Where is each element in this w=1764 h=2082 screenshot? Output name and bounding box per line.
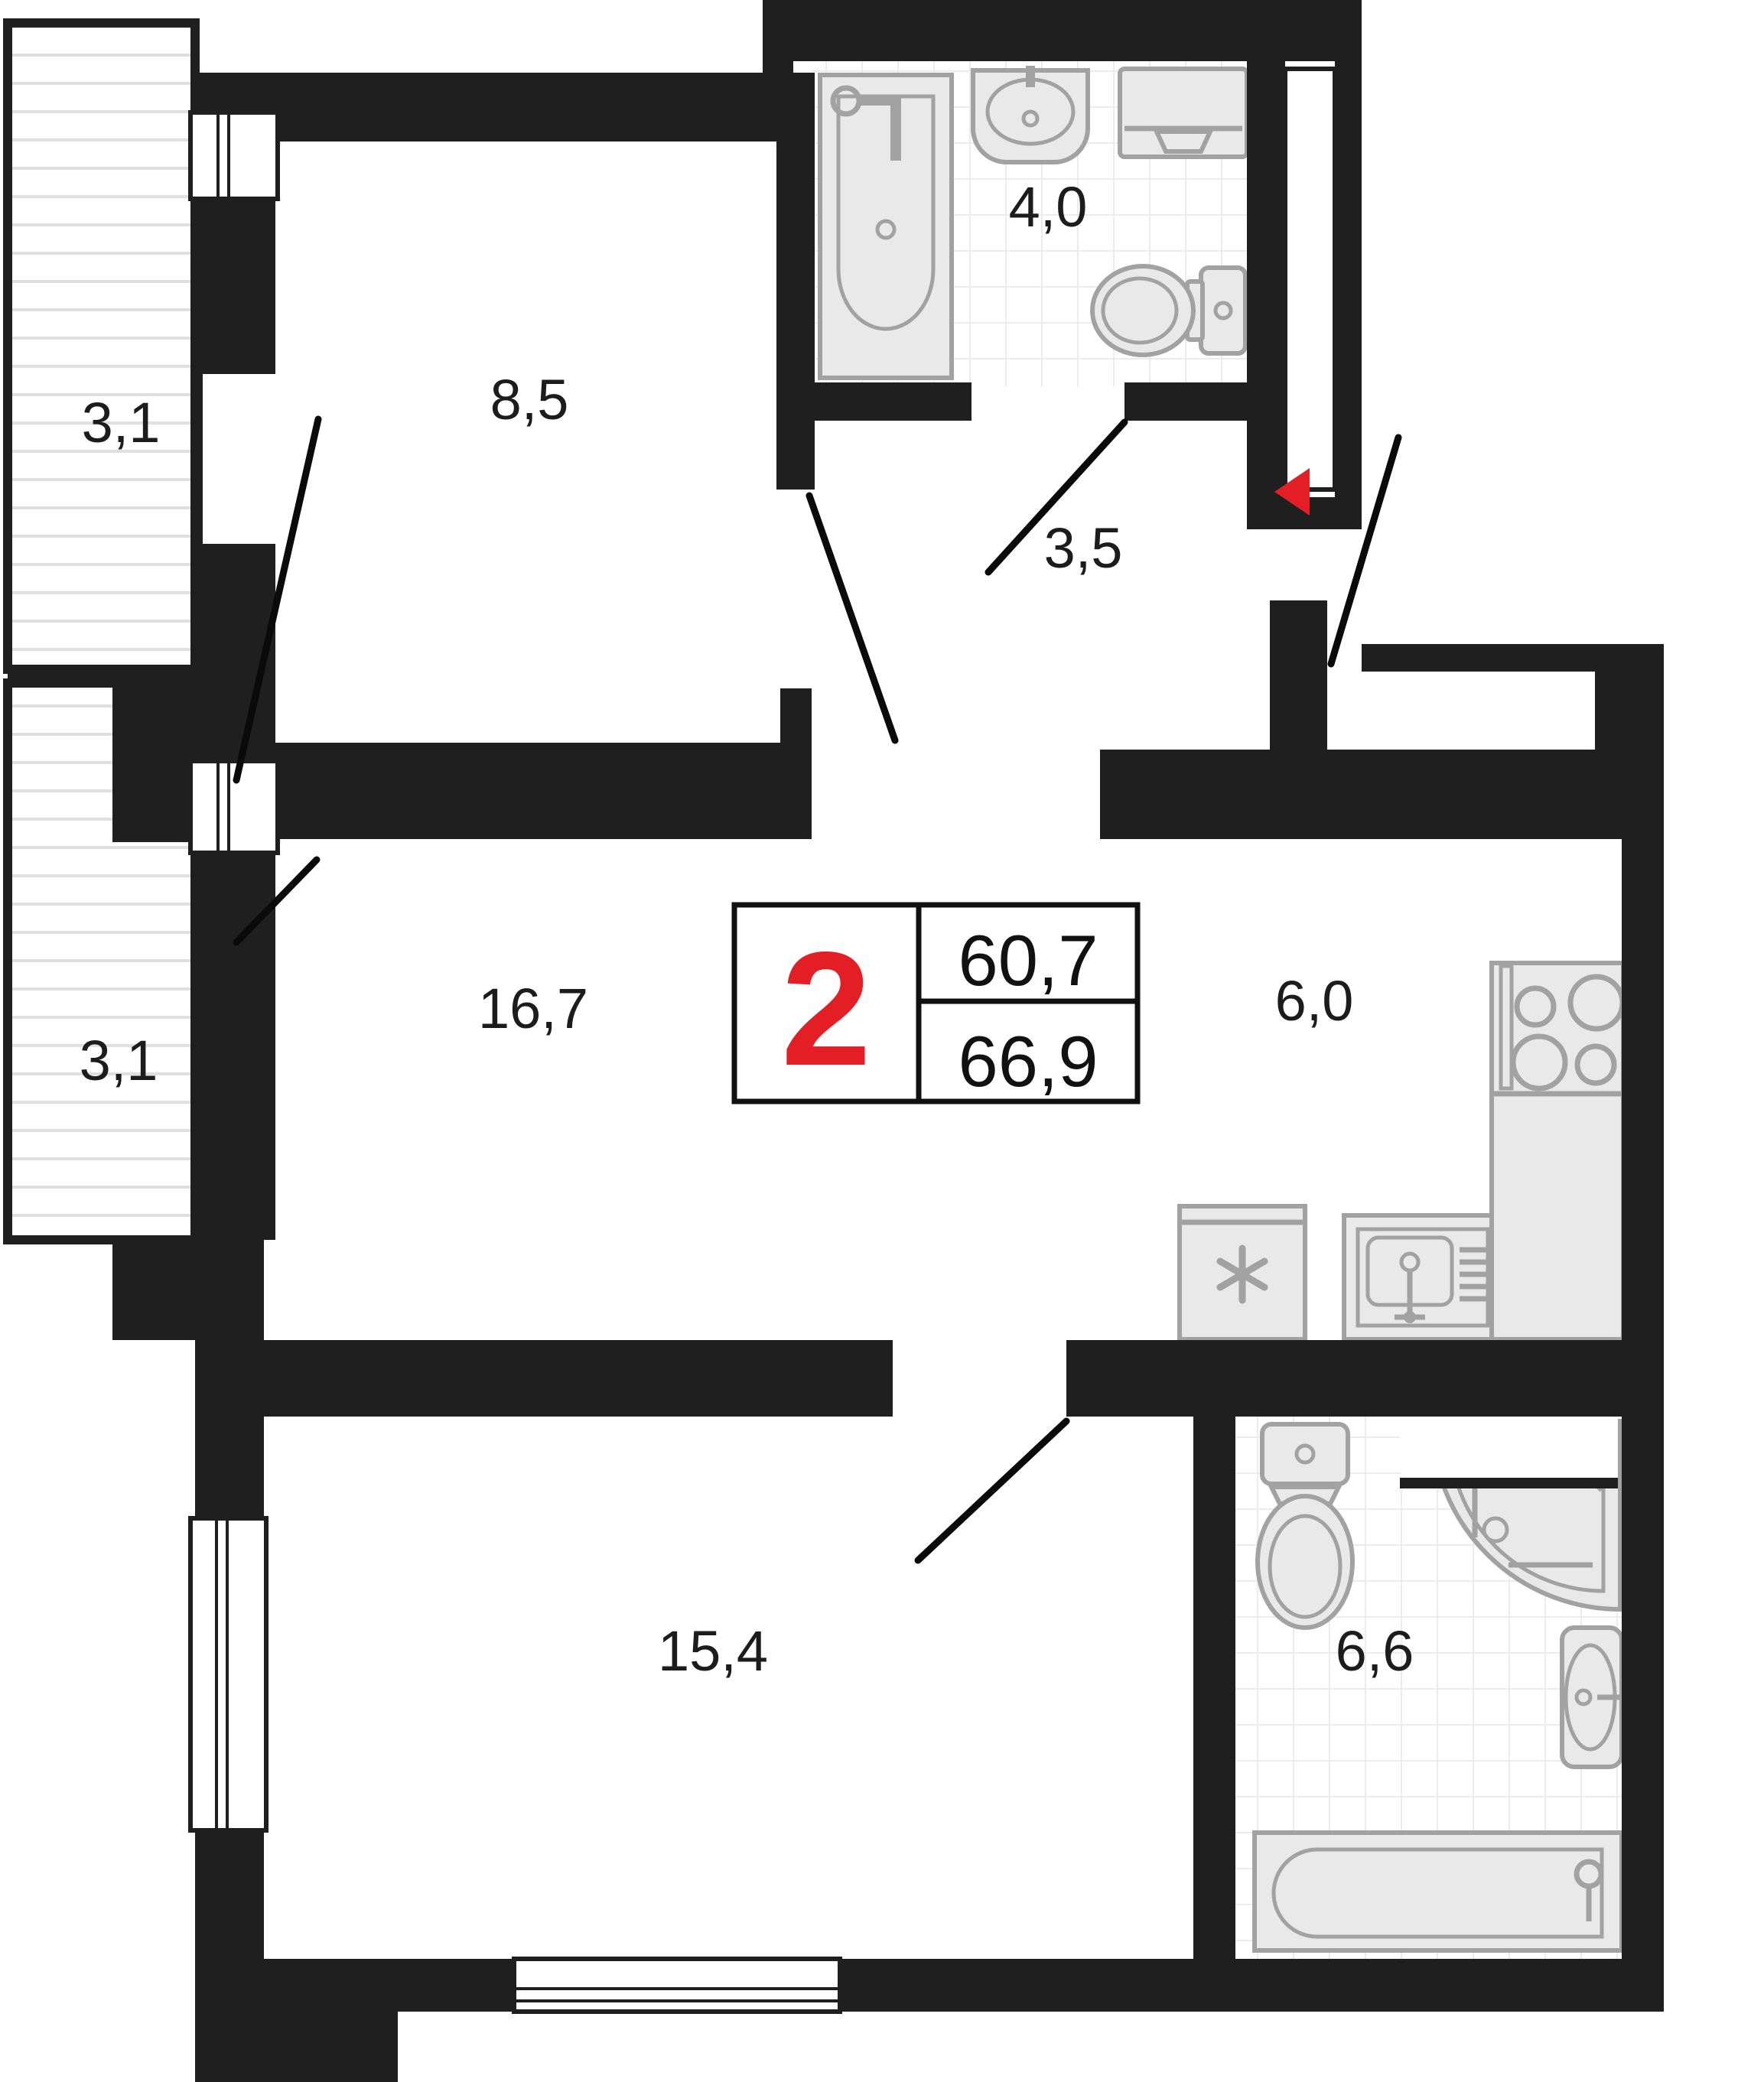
balcony-window <box>190 112 278 199</box>
toilet-2-icon <box>1258 1424 1352 1628</box>
area-living: 60,7 <box>958 920 1098 1000</box>
floor-plan: 3,1 8,5 4,0 3,5 3,1 16,7 6,0 15,4 6,6 2 … <box>0 0 1764 2082</box>
room-label-balcony-top: 3,1 <box>82 391 161 454</box>
kitchen-sink-icon <box>1344 1215 1502 1339</box>
bathtub-2-icon <box>1255 1833 1622 1950</box>
duct-shaft <box>1285 69 1335 490</box>
balcony-top <box>8 23 195 669</box>
stove-icon <box>1492 963 1623 1339</box>
room-label-bedroom: 8,5 <box>490 368 569 431</box>
bedroom-2-side-window <box>190 1518 266 1830</box>
wash-basin-icon <box>973 66 1088 162</box>
bedroom-2-bottom-window <box>514 1959 840 2012</box>
room-label-hallway: 3,5 <box>1044 516 1123 580</box>
toilet-icon <box>1092 266 1245 355</box>
area-total: 66,9 <box>958 1021 1098 1101</box>
floor-plan-svg: 3,1 8,5 4,0 3,5 3,1 16,7 6,0 15,4 6,6 2 … <box>0 0 1764 2082</box>
entrance-niche <box>1327 672 1595 750</box>
bathroom-2-niche <box>1400 1417 1618 1488</box>
room-label-bedroom-2: 15,4 <box>658 1619 768 1683</box>
washing-machine-icon <box>1120 69 1247 157</box>
balcony-door-opening <box>203 376 275 542</box>
room-label-balcony-bottom: 3,1 <box>80 1029 158 1092</box>
room-label-bathroom-2: 6,6 <box>1336 1619 1414 1683</box>
rooms-count: 2 <box>781 918 871 1099</box>
fridge-icon <box>1180 1206 1305 1339</box>
room-label-living-room: 16,7 <box>478 977 588 1040</box>
bathtub-icon <box>820 75 952 378</box>
wash-basin-2-icon <box>1562 1628 1622 1767</box>
room-label-kitchen: 6,0 <box>1275 969 1354 1033</box>
room-label-bathroom: 4,0 <box>1009 175 1088 239</box>
